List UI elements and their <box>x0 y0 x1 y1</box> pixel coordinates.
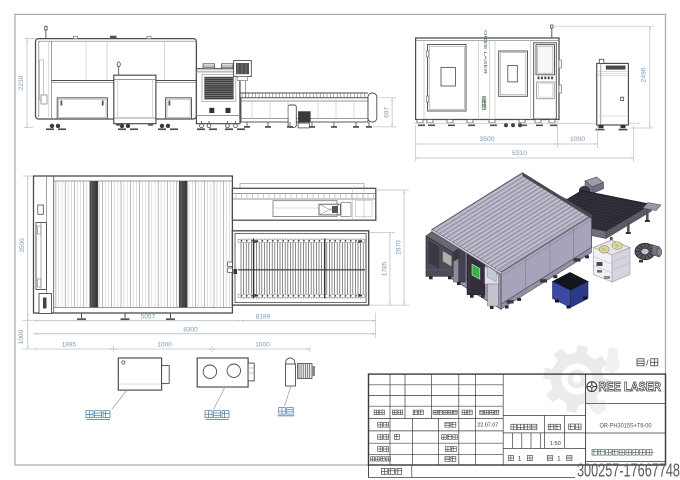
svg-text:22.07.07: 22.07.07 <box>477 423 498 429</box>
svg-text:8300: 8300 <box>183 326 198 333</box>
svg-text:1:50: 1:50 <box>550 441 561 447</box>
svg-text:-: - <box>651 449 653 456</box>
svg-text:1895: 1895 <box>62 341 77 348</box>
svg-text:1: 1 <box>518 455 522 462</box>
svg-text:1000: 1000 <box>255 341 270 348</box>
svg-text:1000: 1000 <box>570 136 585 143</box>
svg-text:1: 1 <box>557 455 561 462</box>
svg-text:300257-17667748: 300257-17667748 <box>577 460 680 480</box>
svg-text:REE LASER: REE LASER <box>599 380 662 394</box>
svg-text:5310: 5310 <box>512 150 527 157</box>
svg-text:1000: 1000 <box>157 341 172 348</box>
svg-text:1785: 1785 <box>381 261 388 276</box>
svg-text:2870: 2870 <box>396 240 403 255</box>
svg-text:697: 697 <box>384 107 391 118</box>
svg-text:2230: 2230 <box>18 75 25 90</box>
svg-text:8189: 8189 <box>256 314 271 321</box>
svg-text:OREE LASER: OREE LASER <box>483 30 488 74</box>
svg-text:3500: 3500 <box>19 238 26 253</box>
svg-text:5057: 5057 <box>141 314 156 321</box>
svg-text:1000: 1000 <box>18 329 25 344</box>
svg-text:2490: 2490 <box>640 67 647 82</box>
svg-text:OR-PH3015S+T6-00: OR-PH3015S+T6-00 <box>600 422 653 429</box>
svg-text:3500: 3500 <box>479 136 494 143</box>
